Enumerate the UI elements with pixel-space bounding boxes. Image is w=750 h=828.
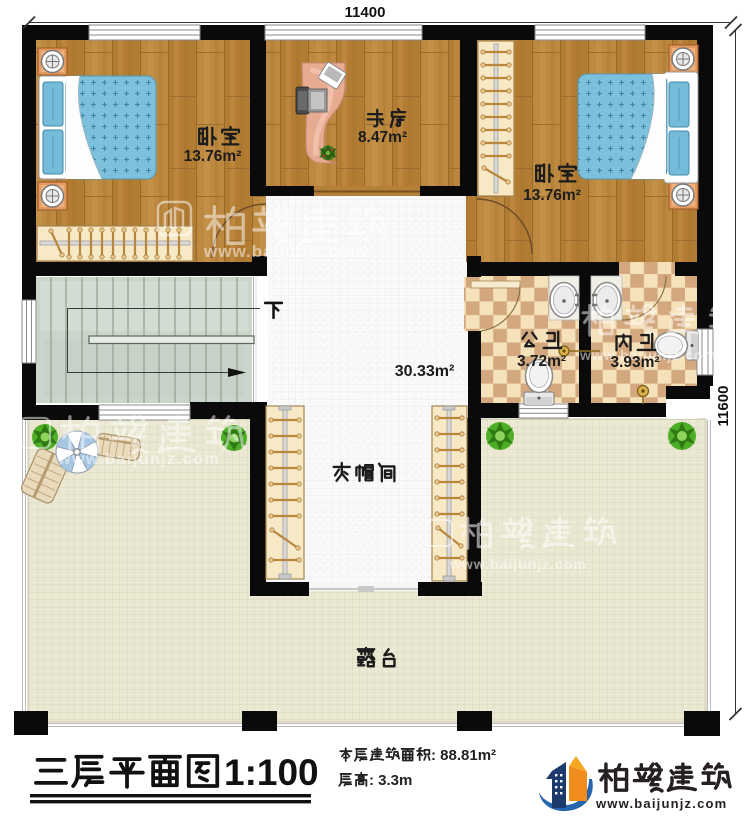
svg-text:30.33m²: 30.33m² bbox=[395, 363, 455, 380]
svg-text:www.baijunjz.com: www.baijunjz.com bbox=[449, 556, 587, 572]
svg-text:: 88.81m²: : 88.81m² bbox=[431, 747, 496, 764]
svg-text:8.47m²: 8.47m² bbox=[358, 129, 407, 146]
svg-text:13.76m²: 13.76m² bbox=[523, 187, 581, 204]
svg-text:1:100: 1:100 bbox=[224, 752, 319, 793]
svg-text:www.baijunjz.com: www.baijunjz.com bbox=[203, 242, 367, 261]
svg-text:11600: 11600 bbox=[715, 386, 732, 427]
svg-text:3.72m²: 3.72m² bbox=[517, 353, 566, 370]
svg-text:www.baijunjz.com: www.baijunjz.com bbox=[595, 796, 727, 811]
svg-text:13.76m²: 13.76m² bbox=[184, 148, 242, 165]
svg-text:www.baijunjz.com: www.baijunjz.com bbox=[57, 451, 220, 468]
svg-text:11400: 11400 bbox=[345, 4, 386, 21]
svg-text:: 3.3m: : 3.3m bbox=[369, 772, 412, 789]
svg-text:3.93m²: 3.93m² bbox=[610, 354, 659, 371]
